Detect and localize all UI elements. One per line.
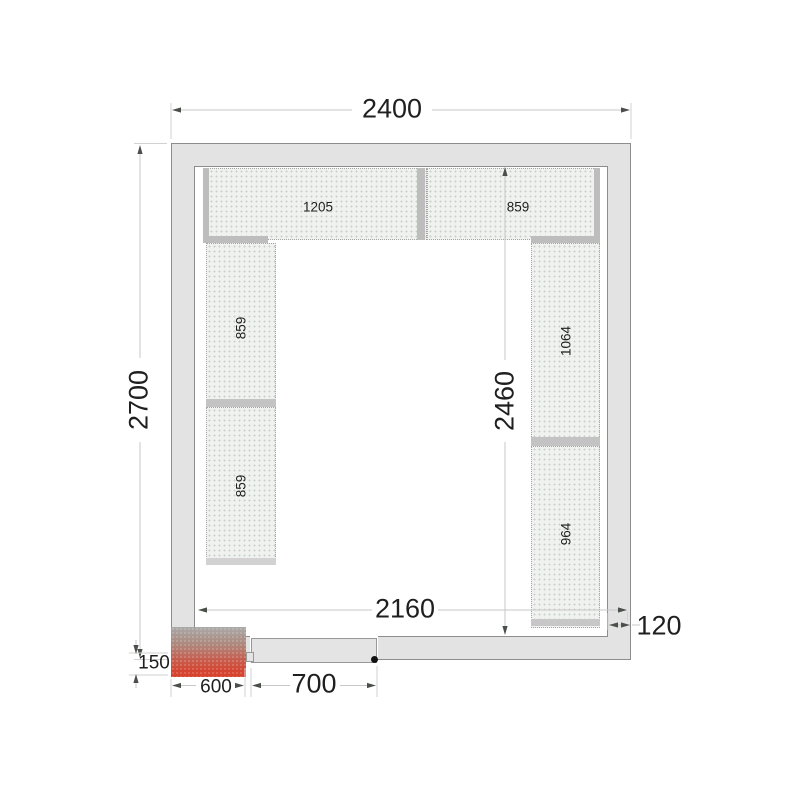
dim-label-unit-protrusion: 150 bbox=[138, 654, 170, 673]
shelf-endbar-left bbox=[206, 558, 276, 565]
dim-label-outer-height: 2700 bbox=[126, 370, 153, 430]
shelf-support-left-corner-h bbox=[203, 236, 268, 243]
dim-label-inner-height: 2460 bbox=[492, 371, 519, 431]
shelf-label-left-upper: 859 bbox=[234, 317, 248, 340]
shelf-support-right-corner-h bbox=[531, 236, 600, 243]
door-hinge-dot bbox=[371, 656, 378, 663]
door-leaf bbox=[251, 638, 377, 663]
shelf-label-top-left: 1205 bbox=[303, 200, 333, 214]
shelf-support-right-corner-v bbox=[594, 168, 600, 240]
shelf-separator-right bbox=[531, 437, 600, 446]
dim-label-door-width: 700 bbox=[291, 671, 336, 698]
dim-label-wall-thickness: 120 bbox=[636, 613, 681, 640]
dim-label-unit-width: 600 bbox=[200, 678, 232, 697]
shelf-divider-top bbox=[417, 168, 425, 240]
condensing-unit bbox=[171, 627, 246, 677]
shelf-label-top-right: 859 bbox=[507, 200, 530, 214]
dim-label-inner-width: 2160 bbox=[375, 596, 435, 623]
shelf-endbar-right bbox=[531, 619, 600, 626]
door-left-jamb bbox=[246, 652, 254, 662]
dim-label-outer-width: 2400 bbox=[362, 96, 422, 123]
shelf-label-right-upper: 1064 bbox=[559, 326, 573, 356]
shelf-label-right-lower: 964 bbox=[559, 523, 573, 546]
shelf-label-left-lower: 859 bbox=[234, 475, 248, 498]
shelf-separator-left bbox=[206, 399, 276, 407]
floorplan-canvas: 2400 2700 2460 2160 120 150 600 700 1205… bbox=[0, 0, 800, 800]
shelf-support-left-corner-v bbox=[203, 168, 209, 240]
